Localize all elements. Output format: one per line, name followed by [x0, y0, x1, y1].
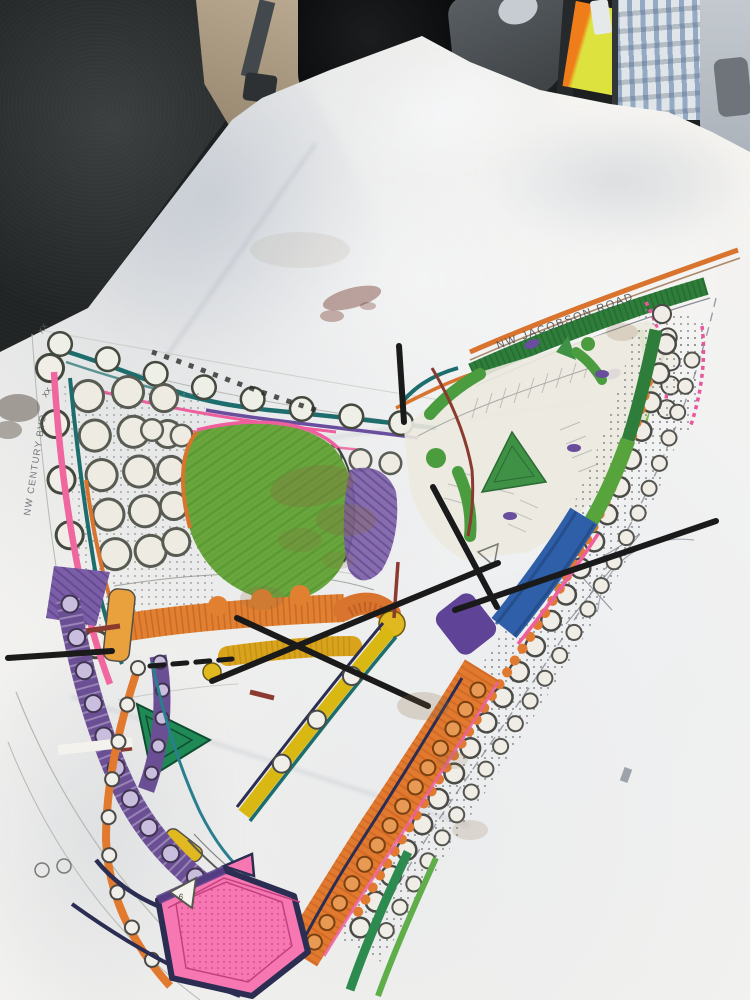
dirt-stain: [316, 504, 376, 536]
dirt-stain: [397, 692, 449, 720]
fence-mark: XX: [36, 322, 49, 335]
edge-smudge: [0, 421, 22, 439]
dirt-stain: [250, 232, 350, 268]
green-island: [581, 337, 595, 351]
dirt-stain: [452, 820, 488, 840]
utility-circle-symbol: [35, 863, 49, 877]
red-stain: [360, 302, 376, 310]
dirt-stain: [322, 551, 354, 569]
utility-circle-symbol: [57, 859, 71, 873]
purple-island: [567, 444, 581, 452]
purple-island: [503, 512, 517, 520]
dirt-stain: [278, 528, 322, 552]
purple-island: [595, 370, 609, 378]
orange-structure: [122, 608, 344, 628]
green-island: [426, 448, 446, 468]
site-plan-drawing: 6 NW JACOBSON ROAD NW CENTURY BVD XX XX: [0, 0, 750, 1000]
gray-fleck: [620, 767, 632, 783]
promenade-teal-stripe: [250, 637, 396, 821]
structure-bump: [290, 585, 310, 605]
maroon-connector: [250, 692, 274, 698]
red-stain: [320, 310, 344, 322]
dirt-stain: [436, 751, 468, 769]
structure-bump: [208, 596, 228, 616]
dirt-stain: [606, 323, 638, 341]
photo-of-site-plan-in-vehicle: 6 NW JACOBSON ROAD NW CENTURY BVD XX XX: [0, 0, 750, 1000]
fence-mark: XX: [40, 386, 53, 399]
edge-smudge: [0, 394, 40, 422]
dirt-stain: [240, 586, 284, 610]
road-label-century: NW CENTURY BVD: [22, 413, 49, 516]
